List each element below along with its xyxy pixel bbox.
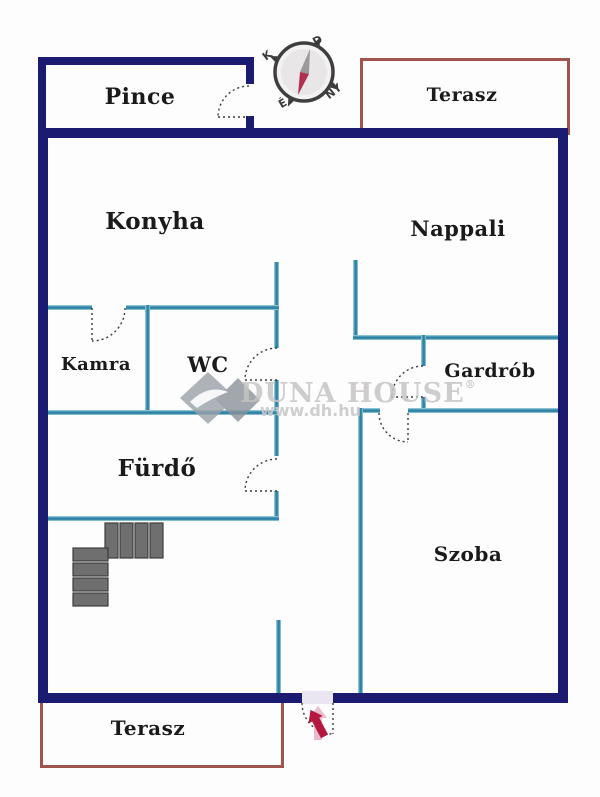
stairs (73, 523, 163, 606)
furdo-door-arc (245, 459, 277, 491)
room-label-terasz-top: Terasz (402, 85, 522, 106)
room-label-szoba: Szoba (408, 543, 528, 565)
pince-door-arc (218, 86, 249, 117)
kamra-door-arc (92, 308, 125, 341)
room-label-pince: Pince (90, 85, 190, 109)
floor-plan: Pince Terasz Konyha Nappali Kamra WC Gar… (0, 0, 600, 797)
watermark-url: www.dh.hu (258, 401, 363, 420)
room-label-furdo: Fürdő (97, 456, 217, 481)
entrance-arrow (303, 706, 331, 740)
room-label-terasz-bottom: Terasz (88, 717, 208, 739)
wc-door-arc (245, 348, 277, 380)
room-label-wc: WC (168, 353, 248, 376)
szoba-door-arc (379, 413, 408, 442)
room-label-konyha: Konyha (95, 209, 215, 234)
room-label-nappali: Nappali (398, 217, 518, 240)
watermark-registered-mark: ® (465, 378, 477, 391)
room-label-kamra: Kamra (46, 355, 146, 375)
